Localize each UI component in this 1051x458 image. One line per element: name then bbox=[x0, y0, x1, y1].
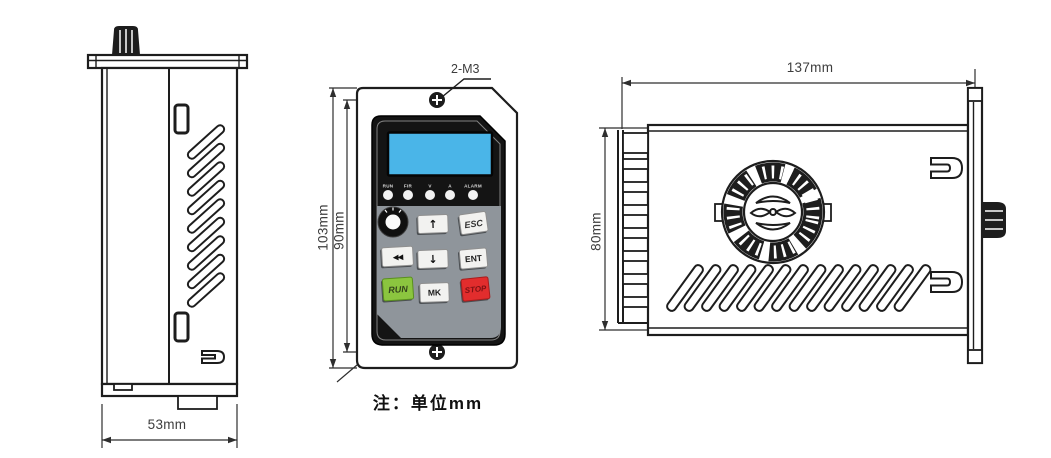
key-up: ↑ bbox=[416, 214, 448, 235]
lcd-display bbox=[388, 133, 492, 176]
front-view: RUN FIR V A ALARM bbox=[315, 60, 530, 385]
front-inner-height-dim-label: 90mm bbox=[332, 208, 347, 254]
knob-icon bbox=[112, 26, 140, 55]
heatsink-fins bbox=[618, 130, 648, 323]
side-width-dim-label: 53mm bbox=[137, 417, 197, 432]
front-outer-height-dim-label: 103mm bbox=[316, 202, 331, 254]
key-down-label: ↓ bbox=[428, 253, 438, 266]
side-view-drawing bbox=[70, 12, 260, 452]
top-height-dim-label: 80mm bbox=[589, 208, 604, 256]
side-slot-top bbox=[175, 105, 188, 133]
front-knob-icon bbox=[378, 207, 408, 237]
key-run-label: RUN bbox=[388, 284, 409, 295]
key-stop: STOP bbox=[459, 277, 490, 303]
screw-spec-label: 2-M3 bbox=[451, 62, 479, 76]
faceplate-strip bbox=[968, 88, 982, 363]
side-slot-bottom bbox=[175, 313, 188, 341]
led-v-icon bbox=[425, 190, 435, 200]
screw-top-icon bbox=[429, 92, 445, 108]
key-run: RUN bbox=[381, 277, 414, 303]
key-ent: ENT bbox=[458, 248, 488, 271]
key-esc: ESC bbox=[457, 211, 488, 236]
screw-bottom-icon bbox=[429, 344, 445, 360]
led-label-fir: FIR bbox=[404, 184, 413, 189]
led-a-icon bbox=[445, 190, 455, 200]
key-ent-label: ENT bbox=[465, 253, 484, 265]
key-prev-label: ◀◀ bbox=[393, 252, 404, 262]
top-view-drawing bbox=[585, 55, 1015, 375]
led-label-run: RUN bbox=[383, 184, 394, 189]
key-mk-label: MK bbox=[428, 287, 442, 297]
top-width-dim-label: 137mm bbox=[777, 60, 843, 75]
key-mk: MK bbox=[418, 282, 449, 304]
technical-drawing-canvas: RUN FIR V A ALARM bbox=[0, 0, 1051, 458]
led-alarm-icon bbox=[468, 190, 478, 200]
top-flange bbox=[88, 55, 247, 68]
key-down: ↓ bbox=[416, 249, 448, 270]
top-view bbox=[585, 55, 1015, 375]
led-label-a: A bbox=[448, 184, 452, 189]
led-label-alarm: ALARM bbox=[464, 184, 482, 189]
key-up-label: ↑ bbox=[428, 218, 438, 231]
top-width-dimension bbox=[622, 69, 975, 129]
top-knob-icon bbox=[982, 202, 1006, 238]
side-base bbox=[102, 384, 237, 409]
led-run-icon bbox=[383, 190, 393, 200]
side-body bbox=[102, 68, 237, 384]
key-prev: ◀◀ bbox=[380, 246, 414, 268]
led-fir-icon bbox=[403, 190, 413, 200]
front-view-drawing: RUN FIR V A ALARM bbox=[315, 60, 530, 385]
unit-note: 注：单位mm bbox=[338, 389, 518, 414]
side-view bbox=[70, 12, 260, 452]
